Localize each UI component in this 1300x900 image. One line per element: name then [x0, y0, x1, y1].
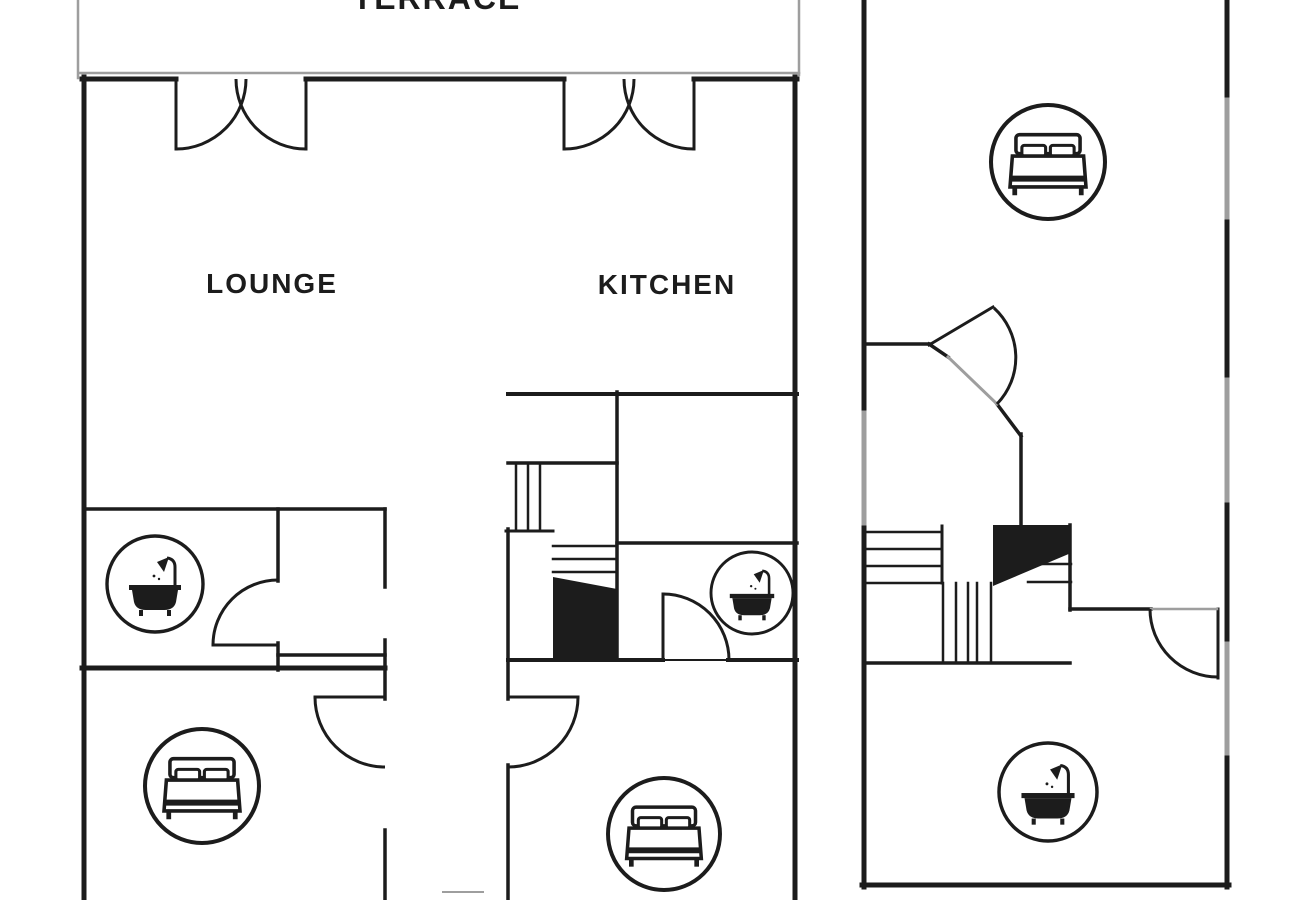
room-label-terrace: TERRACE: [353, 0, 522, 16]
bathtub-shower-icon: [107, 536, 203, 632]
double-bed-icon: [145, 729, 259, 843]
double-bed-icon: [991, 105, 1105, 219]
stair-fill: [993, 525, 1071, 586]
window-segment: [948, 357, 997, 404]
wall-segment: [997, 404, 1021, 436]
floor-plan: TERRACELOUNGEKITCHEN: [0, 0, 1300, 900]
door-swing-arc: [508, 697, 578, 767]
door-swing-arc: [663, 594, 729, 660]
door-swing-arc: [315, 697, 385, 767]
door-swing-arc: [994, 308, 1016, 404]
room-label-lounge: LOUNGE: [206, 268, 338, 299]
room-label-kitchen: KITCHEN: [598, 269, 736, 300]
bathtub-shower-icon: [999, 743, 1097, 841]
wall-segment: [929, 344, 948, 357]
door-swing-arc: [1150, 609, 1218, 677]
wall-segment: [929, 307, 993, 345]
floor-plan-page: TERRACELOUNGEKITCHEN: [0, 0, 1300, 900]
door-swing-arc: [213, 580, 278, 645]
bathtub-shower-icon: [711, 552, 793, 634]
stair-fill: [553, 577, 617, 658]
double-bed-icon: [608, 778, 720, 890]
